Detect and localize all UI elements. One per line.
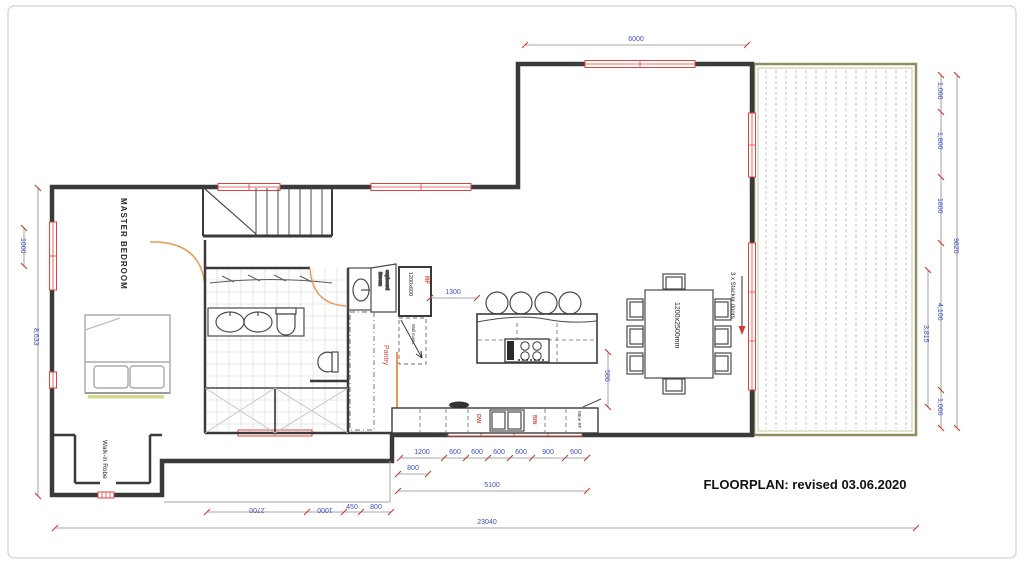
fridge-label: RF: [423, 276, 429, 284]
dishwasher-label: DW: [475, 414, 481, 424]
dim-800: 800: [407, 465, 419, 472]
master-bedroom-label: MASTER BEDROOM: [119, 198, 128, 290]
dim-8633: 8,633: [32, 328, 39, 346]
walk-in-robe-label: Walk-in Robe: [101, 440, 108, 479]
bin-label: BIN: [531, 415, 537, 425]
bed: [85, 315, 170, 399]
deck: [754, 64, 916, 435]
floorplan-drawing: MASTER BEDROOM Walk-in Robe: [0, 0, 1024, 564]
dim-3815: 3,815: [922, 325, 929, 343]
broom-cupboard: Broom cupboard: [371, 264, 396, 312]
dim-left-1000: 1000: [19, 238, 26, 254]
dim-right-4: 1,000: [936, 398, 943, 416]
floorplan-page: MASTER BEDROOM Walk-in Robe: [0, 0, 1024, 564]
pantry-label: Pantry: [382, 345, 389, 366]
dim-bench-4: 600: [515, 449, 527, 456]
dim-1000: 1000: [317, 506, 333, 513]
dim-bench-1: 600: [449, 449, 461, 456]
faucet-icon: [449, 402, 469, 409]
wine-fridge-label: Wine RF: [577, 411, 582, 429]
dim-bench-0: 1200: [414, 449, 430, 456]
broom-label-2: cupboard: [384, 270, 390, 290]
toilet: [276, 308, 296, 335]
dim-2700: 2700: [249, 506, 265, 513]
stool: [486, 292, 508, 314]
stacker-doors-label: 3 x Stacker doors: [729, 272, 735, 319]
stool: [535, 292, 557, 314]
dim-450: 450: [346, 504, 358, 511]
dim-right-0: 1,000: [936, 82, 943, 100]
dim-bench-6: 600: [570, 449, 582, 456]
wall-ovens-label: Wall ovens: [411, 324, 416, 344]
dim-bench-3: 600: [493, 449, 505, 456]
sink: [490, 410, 524, 431]
fridge-size-label: 1200x600: [407, 272, 413, 296]
dim-9820: 9820: [952, 238, 959, 254]
dim-right-3: 4,100: [936, 303, 943, 321]
dim-5100: 5100: [484, 482, 500, 489]
broom-label-1: Broom: [377, 272, 383, 286]
stool: [559, 292, 581, 314]
cooktop: [505, 339, 549, 362]
floorplan-title: FLOORPLAN: revised 03.06.2020: [703, 477, 906, 492]
dim-right-2: 1800: [936, 198, 943, 214]
dim-bench-2: 600: [471, 449, 483, 456]
dim-500: 500: [603, 370, 610, 382]
dim-bench-5: 900: [542, 449, 554, 456]
dim-6000: 6000: [628, 36, 644, 43]
dim-right-1: 1,800: [936, 132, 943, 150]
stool: [510, 292, 532, 314]
dim-23040: 23040: [477, 519, 497, 526]
toilet-2: [318, 352, 338, 372]
kitchen-island: [477, 292, 597, 363]
fridge: 1200x600 RF: [399, 267, 431, 316]
dim-1300: 1300: [445, 289, 461, 296]
dim-800b: 800: [370, 504, 382, 511]
table-size-label: 1200x2500mm: [673, 302, 680, 348]
